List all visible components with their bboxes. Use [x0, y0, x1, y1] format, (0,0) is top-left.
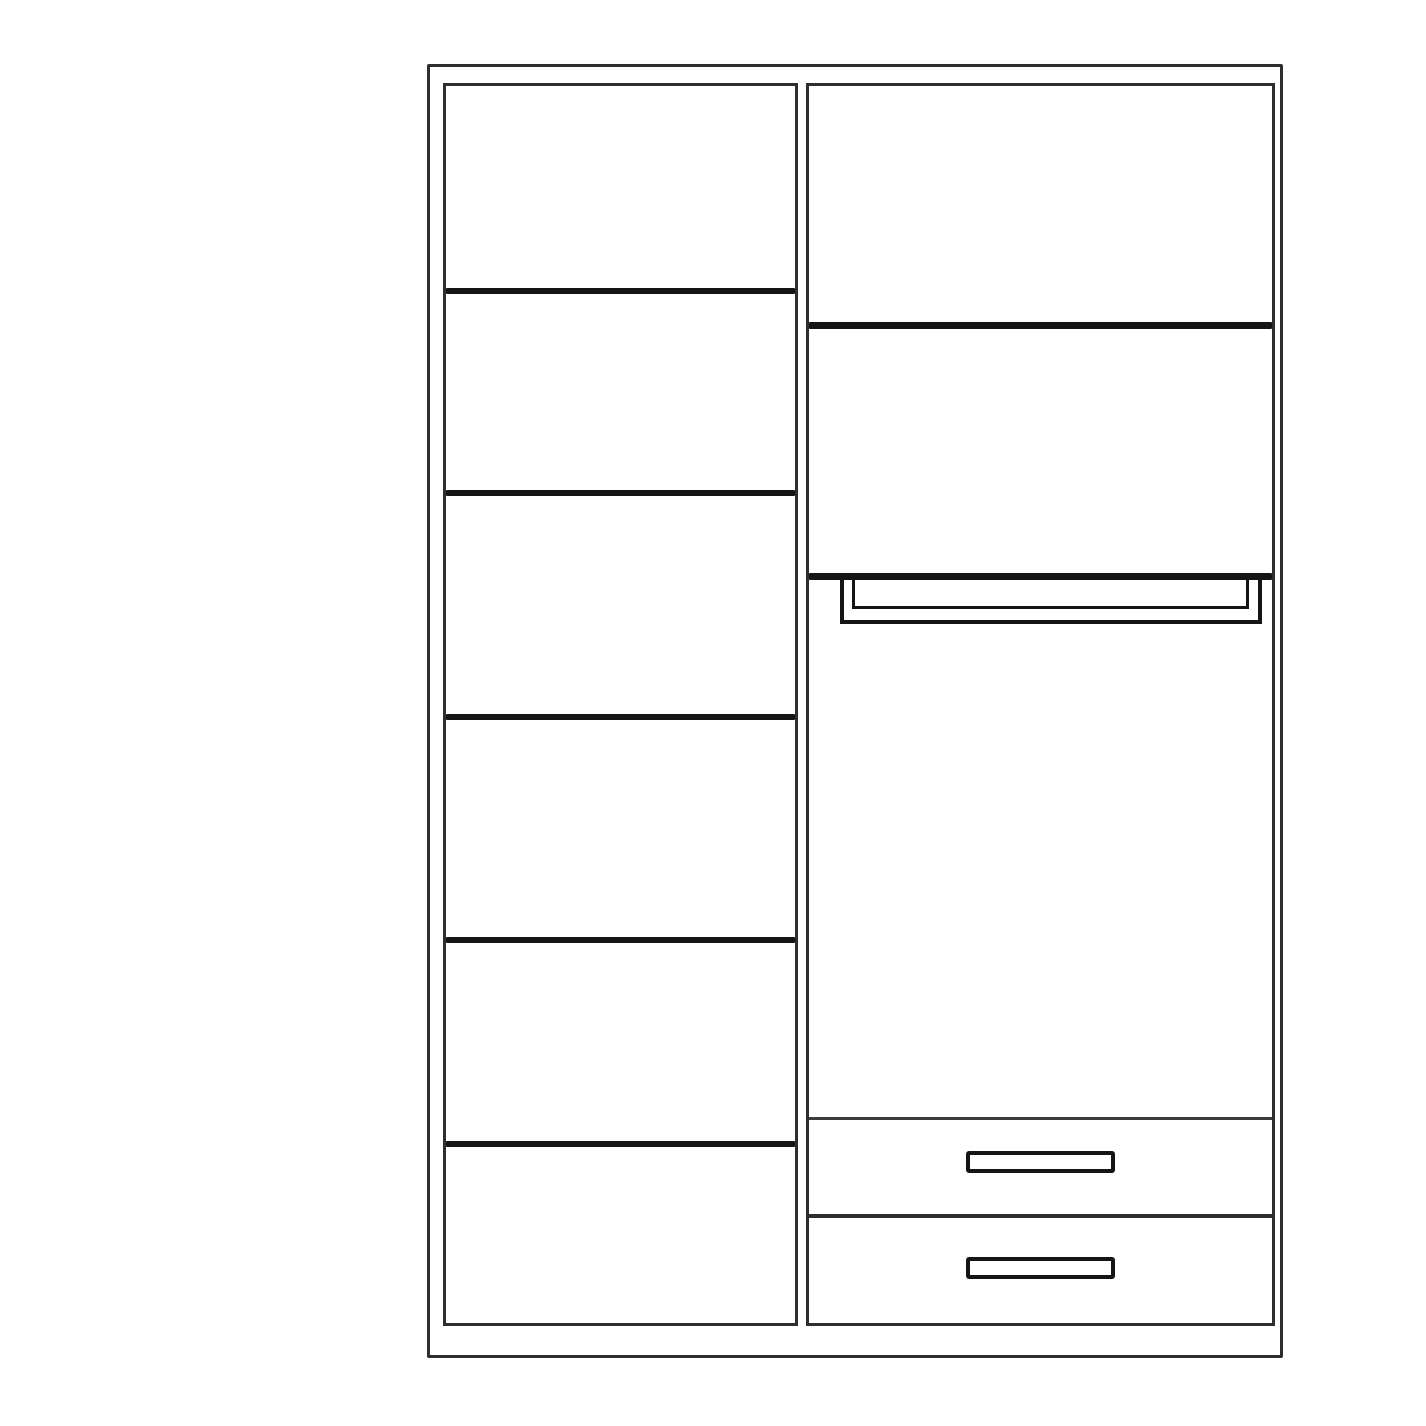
drawer-handle-lower	[966, 1257, 1115, 1279]
drawer-handle-upper	[966, 1151, 1115, 1173]
right-hanging-column-panel	[806, 83, 1275, 1326]
left-shelf-line-2	[446, 490, 795, 496]
left-shelf-line-4	[446, 937, 795, 943]
wardrobe-line-drawing	[0, 0, 1426, 1426]
drawer-top-edge-line	[809, 1117, 1272, 1120]
left-shelf-line-5	[446, 1141, 795, 1147]
hanging-rail-inner-bar	[852, 580, 1249, 609]
left-shelf-column-panel	[443, 83, 798, 1326]
left-shelf-line-3	[446, 714, 795, 720]
right-upper-shelf-line-2	[809, 573, 1272, 580]
right-upper-shelf-line-1	[809, 322, 1272, 329]
left-shelf-line-1	[446, 288, 795, 294]
drawer-divider-line	[809, 1214, 1272, 1218]
